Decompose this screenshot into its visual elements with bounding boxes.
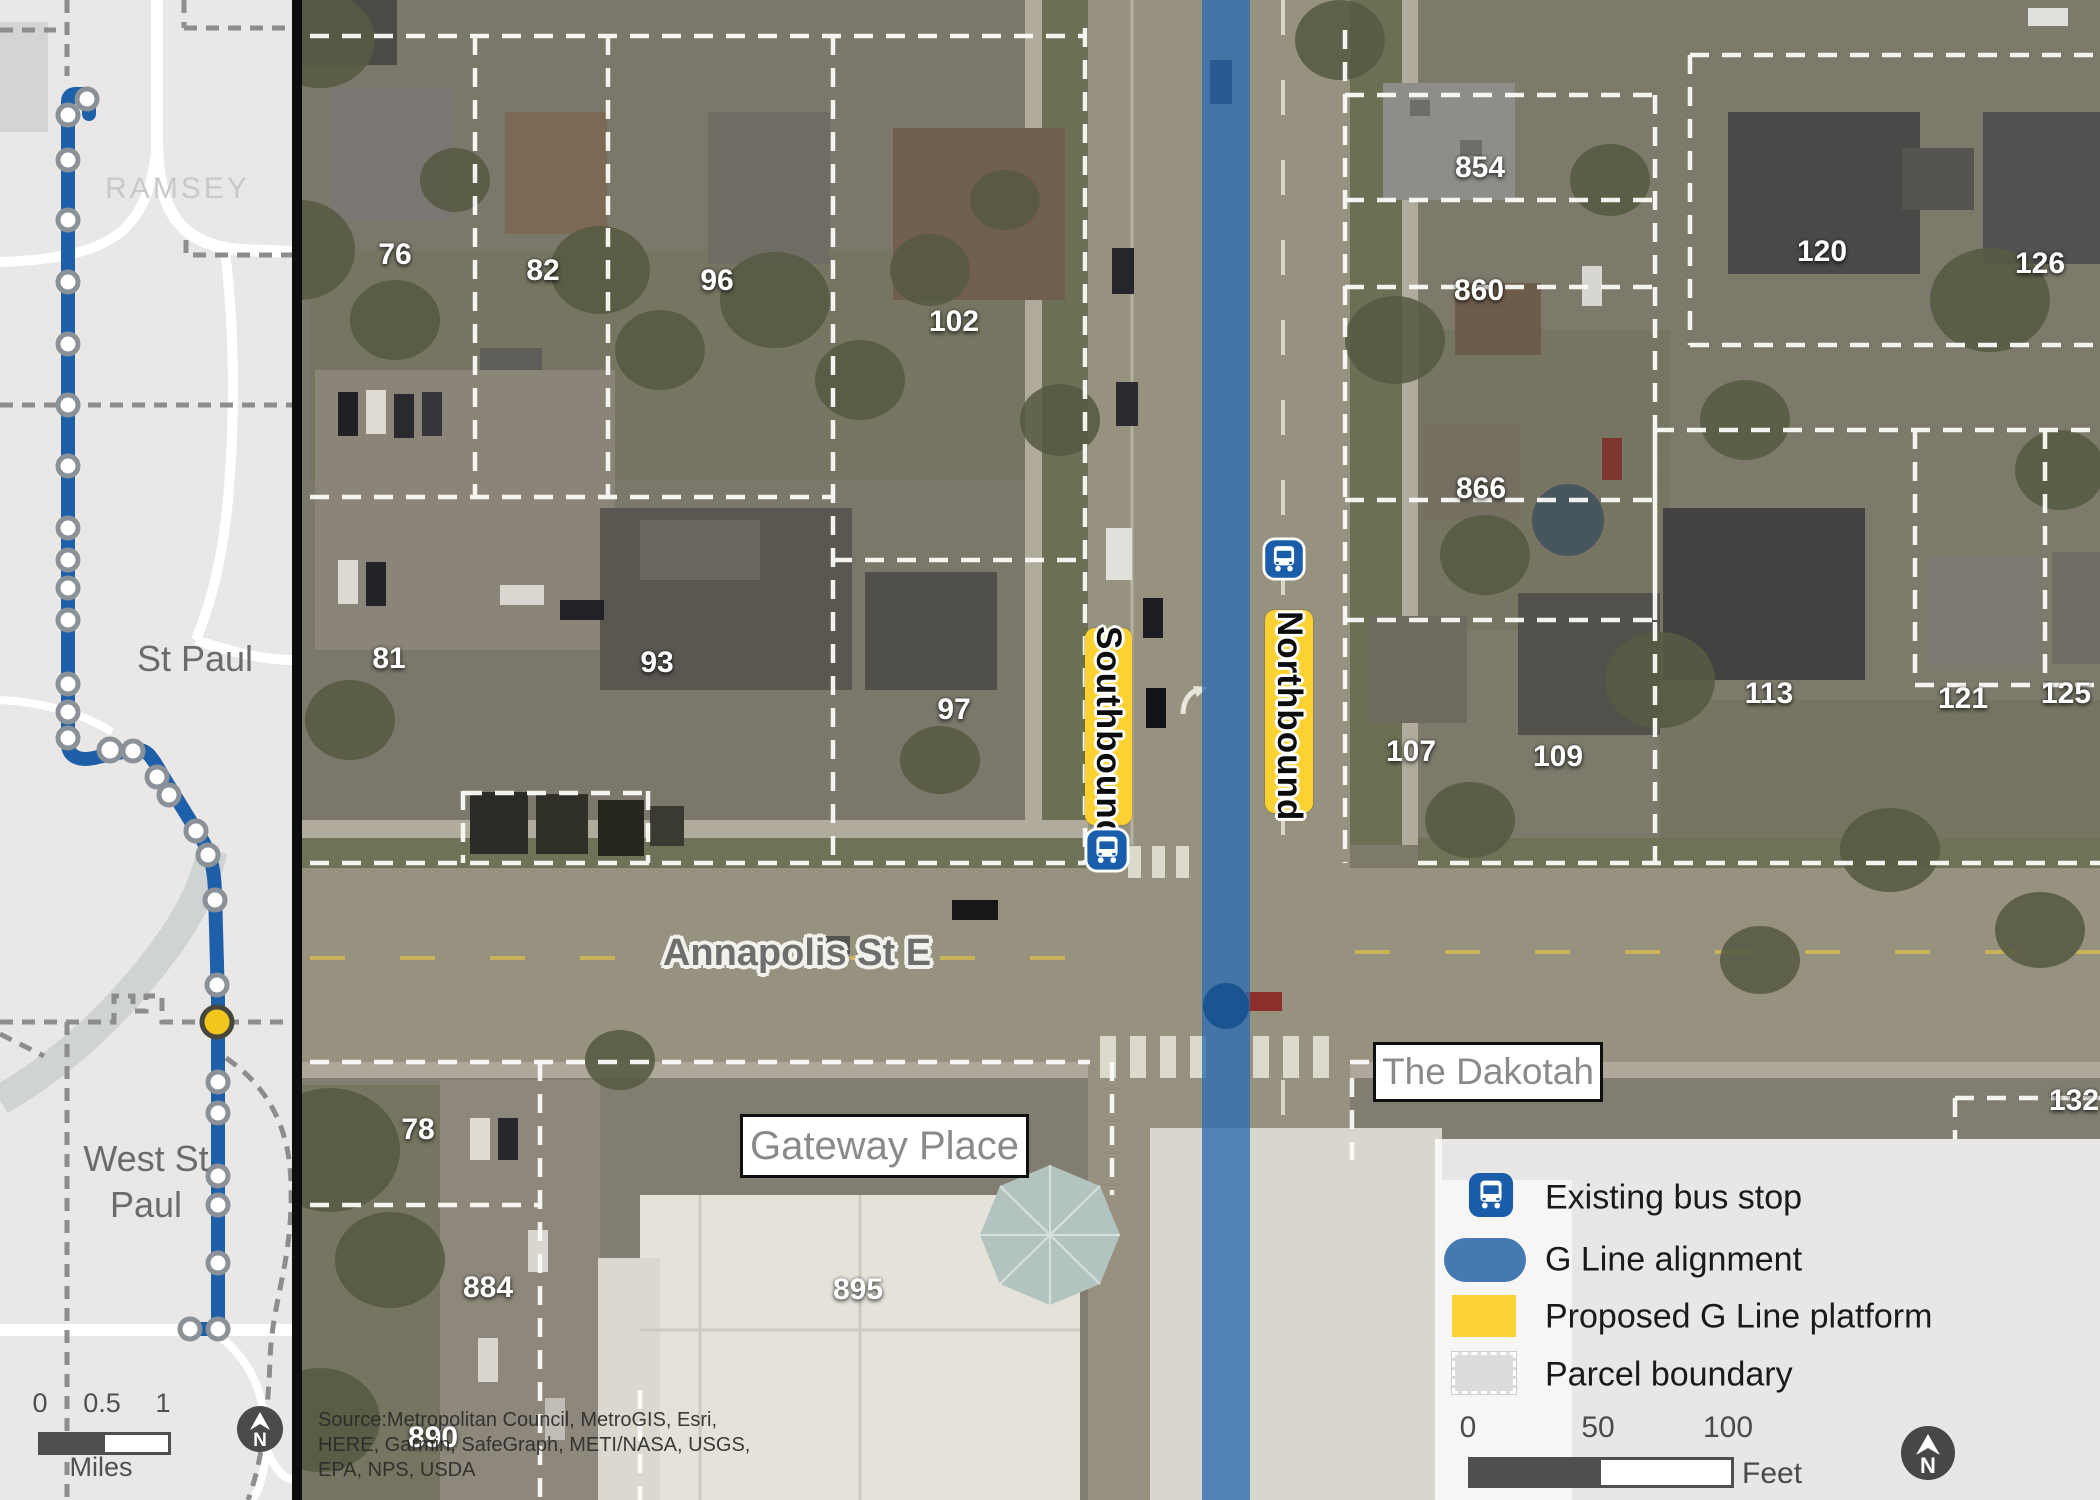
parcel-number-label: 884 — [463, 1271, 513, 1305]
source-line: Source:Metropolitan Council, MetroGIS, E… — [318, 1408, 788, 1433]
g-line-alignment-band — [1202, 0, 1250, 1500]
parcel-number-label: 76 — [378, 238, 411, 272]
bus-stop-icon-southbound[interactable] — [1084, 827, 1130, 873]
parcel-number-label: 93 — [640, 646, 673, 680]
northbound-platform-label: Northbound — [1266, 611, 1312, 811]
source-line: HERE, Garmin, SafeGraph, METI/NASA, USGS… — [318, 1433, 788, 1458]
g-line-alignment-swatch — [1444, 1238, 1526, 1282]
source-line: EPA, NPS, USDA — [318, 1458, 788, 1483]
city-label-line: Paul — [56, 1182, 236, 1228]
county-label-ramsey: RAMSEY — [95, 172, 260, 206]
legend-scale-bar — [1468, 1457, 1734, 1488]
southbound-platform-label: Southbound — [1085, 626, 1131, 826]
parcel-number-label: 96 — [700, 264, 733, 298]
place-label-dakotah: The Dakotah — [1373, 1042, 1603, 1102]
parcel-number-label: 78 — [401, 1113, 434, 1147]
overview-north-arrow-icon: N — [237, 1406, 283, 1452]
parcel-number-label: 866 — [1456, 472, 1506, 506]
overview-scale-tick: 0.5 — [83, 1388, 121, 1419]
parcel-number-label: 109 — [1533, 740, 1583, 774]
overview-scale-unit: Miles — [69, 1452, 132, 1483]
overview-map-panel[interactable]: N RAMSEY St Paul West St Paul 0 0.5 1 Mi… — [0, 0, 292, 1500]
legend-scale-tick: 0 — [1460, 1411, 1477, 1445]
overview-scale-tick: 0 — [32, 1388, 47, 1419]
parcel-number-label: 121 — [1938, 682, 1988, 716]
proposed-platform-swatch — [1452, 1295, 1516, 1337]
parcel-number-label: 107 — [1386, 735, 1436, 769]
street-label-annapolis: Annapolis St E — [647, 932, 947, 975]
legend-panel: Existing bus stop G Line alignment Propo… — [1435, 1139, 2100, 1500]
parcel-number-label: 126 — [2015, 247, 2065, 281]
parcel-number-label: 113 — [1745, 677, 1793, 711]
g-line-station-dot — [1203, 983, 1249, 1029]
overview-current-stop-marker[interactable] — [202, 1007, 232, 1037]
parcel-number-label: 132 — [2049, 1084, 2099, 1118]
source-attribution: Source:Metropolitan Council, MetroGIS, E… — [318, 1408, 788, 1483]
north-arrow-icon: N — [1900, 1425, 1956, 1481]
parcel-boundary-swatch — [1452, 1352, 1516, 1394]
parcel-number-label: 81 — [372, 642, 405, 676]
parcel-number-label: 895 — [833, 1273, 883, 1307]
transit-map-page: Annapolis St E Gateway Place The Dakotah… — [0, 0, 2100, 1500]
legend-scale-unit: Feet — [1742, 1457, 1802, 1491]
parcel-number-label: 860 — [1454, 274, 1504, 308]
legend-scale-tick: 50 — [1581, 1411, 1614, 1445]
legend-item-parcel-boundary: Parcel boundary — [1545, 1356, 1793, 1395]
city-label-west-st-paul: West St Paul — [56, 1136, 236, 1228]
place-label-gateway-text: Gateway Place — [750, 1124, 1019, 1169]
parcel-number-label: 854 — [1455, 151, 1505, 185]
legend-item-existing-bus-stop: Existing bus stop — [1545, 1179, 1802, 1218]
parcel-number-label: 125 — [2041, 677, 2091, 711]
north-arrow-letter: N — [1920, 1453, 1936, 1478]
legend-scale-tick: 100 — [1703, 1411, 1753, 1445]
place-label-dakotah-text: The Dakotah — [1382, 1051, 1594, 1093]
place-label-gateway: Gateway Place — [740, 1114, 1029, 1178]
parcel-number-label: 97 — [937, 693, 970, 727]
overview-north-letter: N — [253, 1430, 267, 1451]
parcel-number-label: 82 — [526, 254, 559, 288]
city-label-line: West St — [56, 1136, 236, 1182]
legend-item-proposed-platform: Proposed G Line platform — [1545, 1298, 1932, 1337]
legend-item-g-line-alignment: G Line alignment — [1545, 1241, 1802, 1280]
overview-map-canvas[interactable]: N — [0, 0, 292, 1500]
panel-divider — [292, 0, 302, 1500]
overview-scale-tick: 1 — [155, 1388, 170, 1419]
city-label-st-paul: St Paul — [105, 638, 285, 680]
bus-stop-legend-icon — [1468, 1172, 1514, 1218]
bus-stop-icon-northbound[interactable] — [1262, 537, 1306, 581]
parcel-number-label: 120 — [1797, 235, 1847, 269]
parcel-number-label: 102 — [929, 305, 979, 339]
